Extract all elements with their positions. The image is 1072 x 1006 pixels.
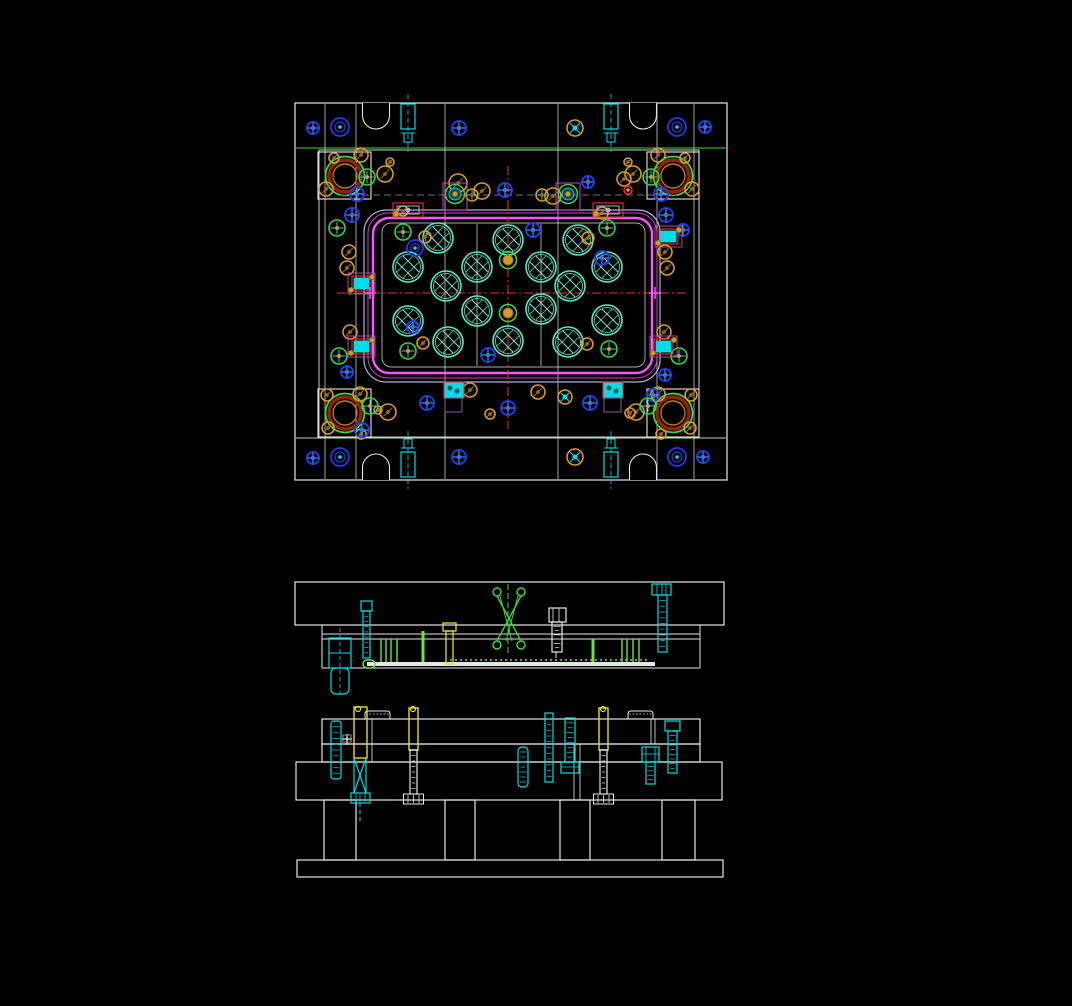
side-slider [370, 275, 375, 280]
return-pin-top [601, 707, 606, 712]
bolt-orange [325, 188, 328, 191]
ejector-screw-head [549, 608, 566, 622]
bolt-orange [326, 394, 329, 397]
sprue-puller [517, 588, 525, 596]
plan-view [295, 94, 727, 489]
side-slider [651, 351, 656, 356]
gate-lines [622, 639, 639, 662]
bottom-slider [448, 386, 452, 390]
cap-bolt-head [652, 584, 671, 595]
sprue-puller [493, 588, 501, 596]
guide-bushing [661, 401, 685, 425]
core-pin-circle [555, 271, 585, 301]
bolt-orange [664, 251, 667, 254]
gate-insert [566, 192, 571, 197]
ring-blue [339, 456, 342, 459]
cap-bolt-body [658, 595, 667, 652]
screw-blue [664, 213, 668, 217]
screw-blue [651, 393, 655, 397]
screw-head [361, 601, 372, 611]
guide-bushing [657, 397, 689, 429]
screw-blue [701, 455, 705, 459]
clamp-notch [363, 103, 390, 129]
plate-division-lines [325, 104, 694, 479]
shoulder-bolt-body [565, 718, 575, 762]
return-pin-top [601, 707, 606, 712]
edge-slider [593, 211, 599, 217]
target-green [402, 231, 405, 234]
riser-block [560, 800, 590, 860]
clamp-notch [630, 103, 657, 129]
edge-slider [606, 208, 610, 212]
return-pin-top [411, 707, 416, 712]
bolt-orange [348, 251, 351, 254]
ring-blue [676, 456, 679, 459]
cad-drawing-stage [0, 0, 1072, 1006]
target-green [369, 405, 372, 408]
screw-blue [311, 456, 315, 460]
core-pin-circle [595, 308, 620, 333]
sprue-circle [503, 308, 513, 318]
sprue-puller [493, 641, 501, 649]
edge-slider [406, 208, 410, 212]
core-pin-circle [553, 327, 583, 357]
target-green [366, 176, 369, 179]
core-pin-circle [592, 252, 622, 282]
bottom-slider [607, 386, 611, 390]
ring-blue [676, 126, 679, 129]
guide-bushing [333, 164, 357, 188]
core-pin-circle [431, 271, 461, 301]
gate-lines [381, 639, 397, 662]
bolt-orange [666, 267, 669, 270]
bolt-orange [327, 427, 330, 430]
bolt-orange [402, 210, 405, 213]
bottom-slider [614, 389, 618, 393]
orange-cyan-plug [573, 126, 577, 130]
eyebolt-hole [604, 104, 618, 129]
bolt-orange [387, 411, 390, 414]
screw-cyan-long [545, 713, 553, 782]
upper-section-view [295, 582, 724, 698]
target-green [338, 355, 341, 358]
sprue-puller [493, 588, 501, 596]
edge-slider [393, 211, 399, 217]
target-green [336, 227, 339, 230]
bolt-orange [384, 173, 387, 176]
ejector-screw-head [549, 608, 566, 622]
bolt-orange [587, 237, 590, 240]
target-green [650, 176, 653, 179]
screw-blue [703, 125, 707, 129]
plate-lines [322, 625, 700, 668]
bolt-orange [689, 427, 692, 430]
bolt-orange [424, 236, 427, 239]
bolt-orange [657, 154, 660, 157]
sprue-puller [517, 641, 525, 649]
hex-bolt-body [668, 731, 677, 773]
screw-blue [586, 180, 590, 184]
side-slider [370, 338, 375, 343]
runner-strip [367, 662, 655, 666]
bolt-orange [481, 190, 484, 193]
bolt-orange [346, 267, 349, 270]
screw-blue [350, 213, 354, 217]
riser-block [662, 800, 695, 860]
riser-block [324, 800, 356, 860]
small-red-ring [624, 186, 632, 194]
clamp-notch [363, 454, 390, 480]
cap-bolt-head [652, 584, 671, 595]
core-pin-circle [433, 327, 463, 357]
plug-orange-cross [471, 194, 474, 197]
clamp-notch [630, 454, 657, 480]
stop-pin-head [443, 623, 456, 631]
shoulder-bolt-body [565, 718, 575, 762]
side-slider [656, 241, 661, 246]
core-bump [365, 711, 390, 719]
ring-blue [414, 247, 417, 250]
screw-blue [531, 228, 535, 232]
target-green [407, 350, 410, 353]
bottom-slider [604, 398, 621, 412]
bottom-slider [445, 398, 462, 412]
ejector-pin [404, 750, 614, 804]
riser-block [445, 800, 475, 860]
sprue-puller [517, 588, 525, 596]
hex-bolt-head [665, 721, 680, 731]
side-slider [349, 351, 354, 356]
core-plate [322, 719, 700, 744]
sprue-circle [503, 255, 513, 265]
hex-bolt-body [668, 731, 677, 773]
core-pin-circle [556, 330, 581, 355]
bottom-clamp-plate [297, 860, 723, 877]
gate-insert [453, 192, 458, 197]
screw-head [361, 601, 372, 611]
orange-cyan-plug [563, 395, 567, 399]
bottom-slider [603, 382, 623, 398]
screw-blue [411, 325, 415, 329]
eyebolt-hole [401, 104, 415, 129]
bolt-orange [422, 342, 425, 345]
core-pin-circle [592, 305, 622, 335]
bolt-orange [691, 188, 694, 191]
shoulder-bolt-head [561, 762, 579, 773]
target-green [678, 355, 681, 358]
stop-pin-head [443, 623, 456, 631]
screw-blue [600, 256, 604, 260]
bolt-orange [690, 394, 693, 397]
clamp-notch [363, 103, 657, 480]
bolt-orange [360, 154, 363, 157]
screw-blue [311, 126, 315, 130]
bolt-orange [629, 412, 632, 415]
core-pin-circle [434, 274, 459, 299]
screw-cyan [518, 747, 528, 787]
eyebolt-hole [401, 94, 618, 489]
core-pin-circle [558, 274, 583, 299]
cad-canvas [0, 0, 1072, 1006]
bolt-orange [359, 393, 362, 396]
guide-bushing [326, 157, 693, 433]
bolt-orange [552, 195, 555, 198]
cap-screw-body [646, 762, 655, 784]
core-bump [365, 711, 390, 719]
lower-section-view [296, 707, 723, 878]
bolt-orange [660, 433, 663, 436]
screw-blue [659, 192, 663, 196]
core-pin-circle [396, 255, 421, 280]
bolt-orange [333, 157, 336, 160]
bolt-orange [537, 391, 540, 394]
bolt-orange [349, 331, 352, 334]
plate-edges [322, 625, 700, 668]
bottom-slider [455, 389, 459, 393]
xbrace-foot [351, 793, 370, 803]
side-slider [348, 226, 682, 357]
screw-blue [506, 406, 510, 410]
target-green [647, 405, 650, 408]
screw-blue [457, 455, 461, 459]
screw-blue [663, 373, 667, 377]
bolt-orange [684, 157, 687, 160]
shoulder-bolt-head [561, 762, 579, 773]
bottom-slider [444, 382, 464, 398]
sprue-puller [493, 641, 501, 649]
core-pin-circle [436, 330, 461, 355]
bolt-orange [632, 173, 635, 176]
guide-bushing [333, 401, 357, 425]
bolt-orange [623, 178, 626, 181]
orange-cyan-plug [573, 455, 577, 459]
riser-block [662, 800, 695, 860]
bolt-orange [489, 413, 492, 416]
insert-line [651, 719, 655, 744]
cap-screw-head [642, 747, 659, 762]
riser-block [445, 800, 475, 860]
riser-block [324, 800, 356, 860]
screw-blue [345, 370, 349, 374]
screw-blue [425, 401, 429, 405]
side-slider [354, 278, 369, 289]
stop-pin-body [446, 631, 453, 664]
core-bump [628, 711, 653, 719]
hex-bolt-head [665, 721, 680, 731]
ejector-screw-body [552, 622, 562, 652]
cap-bolt-hatch [657, 584, 666, 595]
screw-cyan [331, 721, 341, 779]
core-pin-circle [423, 223, 453, 253]
core-pin-circle [426, 226, 451, 251]
screw-blue [486, 353, 490, 357]
bolt-orange [627, 161, 630, 164]
side-slider [672, 338, 677, 343]
return-pin-top [411, 707, 416, 712]
core-pin-circle [563, 225, 593, 255]
ring-blue [339, 126, 342, 129]
bolt-orange [663, 331, 666, 334]
target-green [608, 348, 611, 351]
screw-blue [355, 192, 359, 196]
side-slider [661, 231, 676, 242]
core-plate [322, 719, 700, 744]
cap-screw-head [642, 747, 659, 762]
target-green [606, 227, 609, 230]
runner-strip [367, 662, 655, 666]
bolt-orange [469, 389, 472, 392]
guide-bushing [661, 164, 685, 188]
bolt-orange [389, 161, 392, 164]
riser-block [560, 800, 590, 860]
bolt-orange [586, 343, 589, 346]
xbrace-foot [351, 793, 370, 803]
screw-blue [503, 188, 507, 192]
side-slider [656, 341, 671, 352]
screw-blue [588, 401, 592, 405]
plug-orange-cross [541, 194, 544, 197]
screw-blue [457, 126, 461, 130]
core-pin-circle [393, 252, 423, 282]
stop-pin-body [446, 631, 453, 664]
sprue-puller [517, 641, 525, 649]
bottom-clamp-plate [297, 860, 723, 877]
cap-screw-hatch [646, 747, 655, 762]
cap-screw-body [646, 762, 655, 784]
xbrace-foot-ticks [356, 794, 365, 802]
small-red-ring [627, 189, 630, 192]
screw-blue [360, 428, 364, 432]
side-slider [354, 341, 369, 352]
core-bump [628, 711, 653, 719]
side-slider [677, 228, 682, 233]
ejector-screw-lines [553, 608, 559, 622]
side-slider [349, 288, 354, 293]
